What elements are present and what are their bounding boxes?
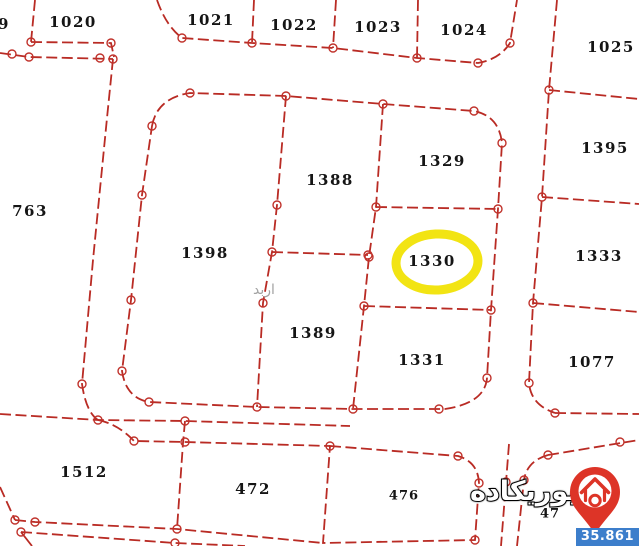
- parcel-label: 476: [389, 489, 419, 504]
- parcel-label: 1022: [270, 16, 318, 34]
- parcel-label: 1331: [398, 351, 446, 369]
- parcel-label: 1333: [575, 247, 623, 265]
- parcel-label: 1512: [60, 463, 108, 481]
- parcel-label: 1389: [289, 324, 337, 342]
- parcel-label: 1398: [181, 244, 229, 262]
- parcel-label: 1329: [418, 152, 466, 170]
- parcel-label: 1021: [187, 11, 235, 29]
- coordinate-badge: 35.861: [576, 528, 639, 546]
- city-watermark: اربد: [253, 282, 275, 298]
- parcel-label: 1395: [581, 139, 629, 157]
- parcel-label: 1025: [587, 38, 635, 56]
- parcel-label: 1024: [440, 21, 488, 39]
- parcel-label: 472: [235, 480, 271, 498]
- parcel-label: 9: [0, 15, 10, 33]
- parcel-label: 1077: [568, 353, 616, 371]
- parcel-label: 1388: [306, 171, 354, 189]
- parcel-label: 1023: [354, 18, 402, 36]
- map-canvas[interactable]: 9 1020 1021 1022 1023 1024 1025 763 1388…: [0, 0, 639, 546]
- parcel-label: 1020: [49, 13, 97, 31]
- parcel-label: 763: [12, 202, 48, 220]
- parcel-label-highlighted: 1330: [408, 252, 456, 270]
